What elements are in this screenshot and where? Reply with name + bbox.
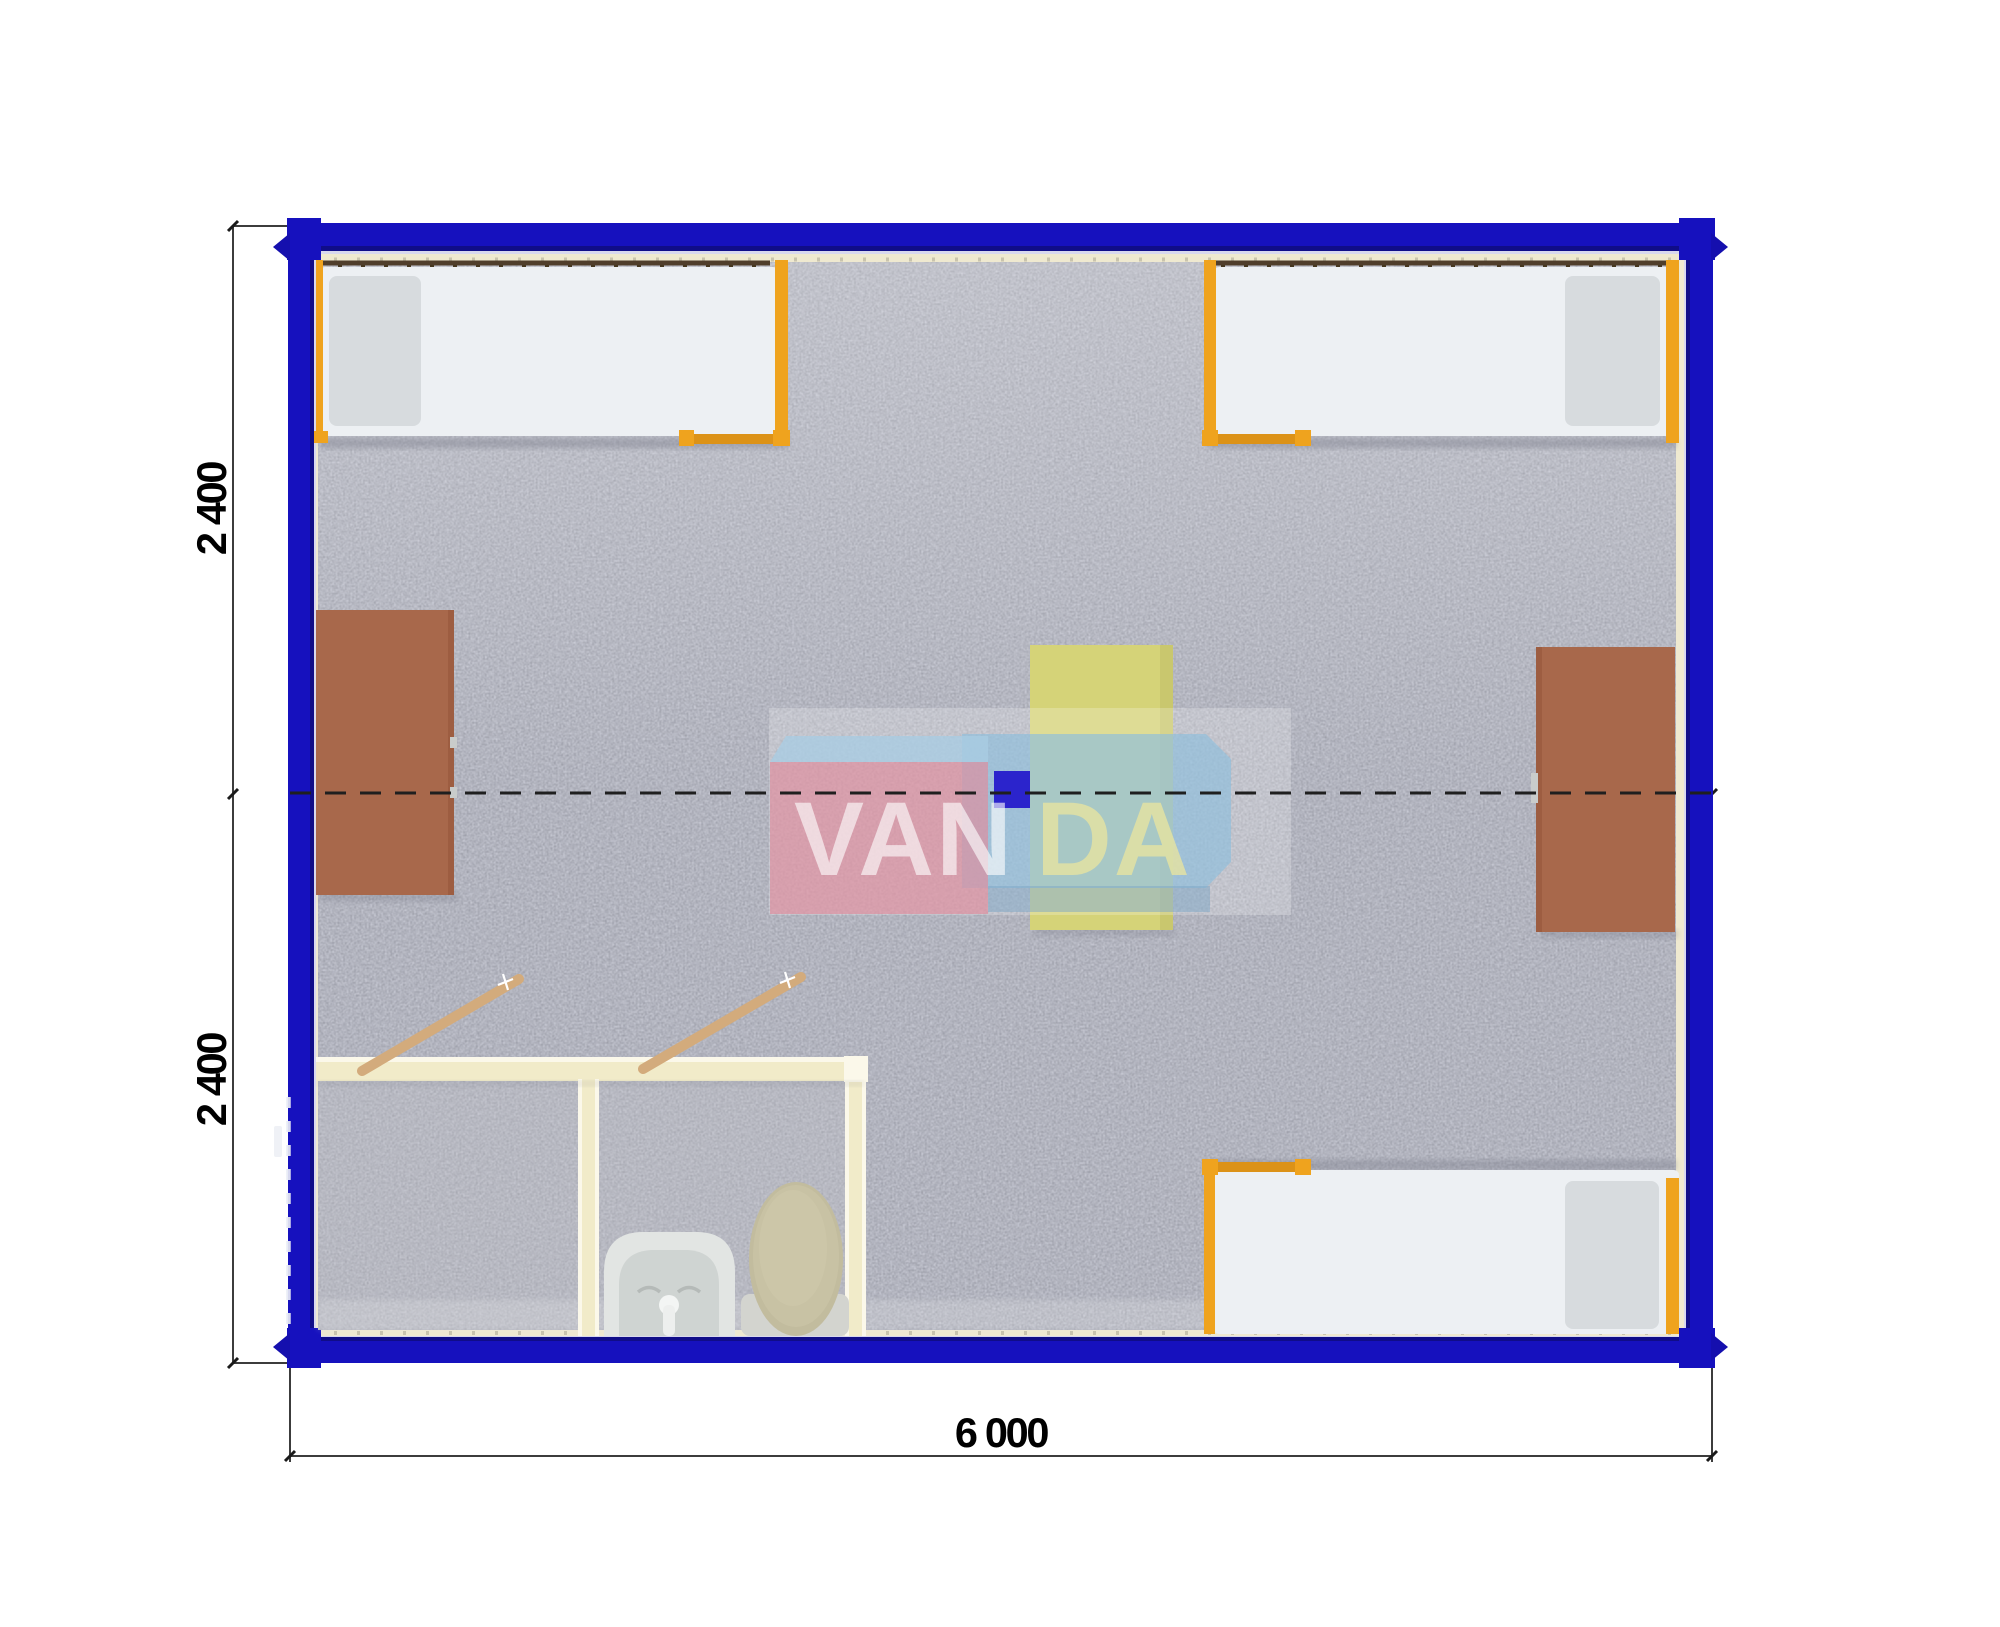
svg-text:VAN: VAN [794,781,1014,898]
svg-text:6 000: 6 000 [955,1409,1049,1456]
svg-text:2 400: 2 400 [188,462,235,556]
svg-text:2 400: 2 400 [188,1033,235,1127]
svg-text:DA: DA [1036,781,1192,898]
